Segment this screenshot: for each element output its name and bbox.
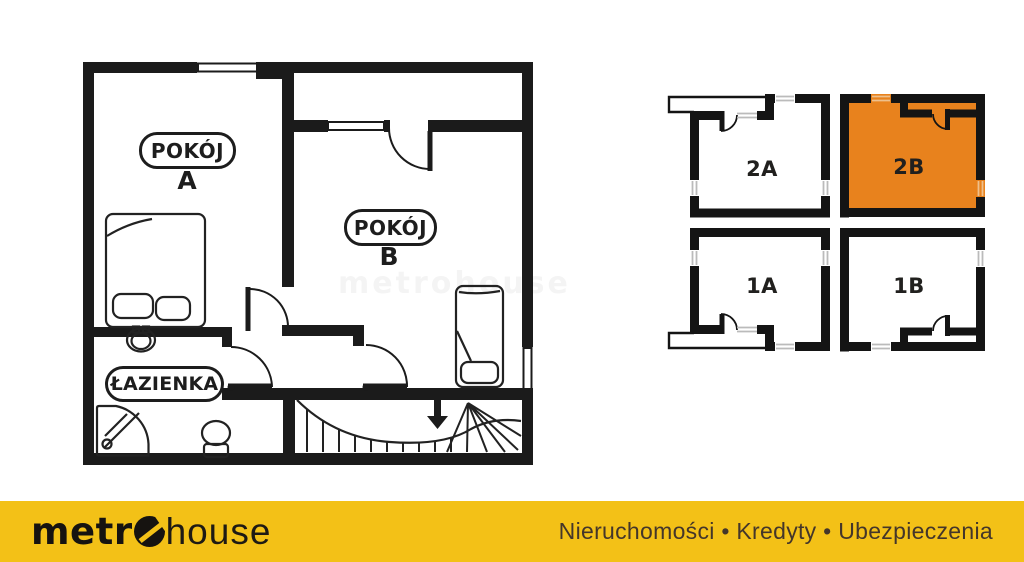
toilet-icon xyxy=(202,421,230,445)
logo-o-house-icon xyxy=(134,516,165,547)
brand-footer-bar: metr house Nieruchomości • Kredyty • Ube… xyxy=(0,501,1024,562)
unit-label-1b: 1B xyxy=(893,274,925,298)
unit-key-diagram xyxy=(669,94,985,352)
floor-plan-drawing xyxy=(0,0,1024,562)
room-b-letter: B xyxy=(374,242,404,271)
logo-o-arrow-tip xyxy=(153,517,167,531)
unit-label-2a: 2A xyxy=(746,157,778,181)
logo-text-metr: metr xyxy=(31,513,133,550)
unit-label-2b: 2B xyxy=(893,155,925,179)
logo-text-house: house xyxy=(166,513,272,550)
pillow-icon xyxy=(156,297,190,320)
down-arrow-icon xyxy=(434,399,441,416)
apartment-plan-walls xyxy=(83,62,533,465)
footer-tagline: Nieruchomości • Kredyty • Ubezpieczenia xyxy=(559,518,993,545)
pillow-icon xyxy=(461,362,498,383)
door-leaf xyxy=(363,384,407,391)
unit-cell-2a xyxy=(669,94,830,218)
bathroom-label-pill: ŁAZIENKA xyxy=(105,366,224,402)
screenshot-root: metrohouse xyxy=(0,0,1024,562)
door-leaf xyxy=(228,384,272,391)
room-b-label-pill: POKÓJ xyxy=(344,209,437,246)
room-a-letter: A xyxy=(172,166,202,195)
room-a-label-pill: POKÓJ xyxy=(139,132,236,169)
unit-label-1a: 1A xyxy=(746,274,778,298)
metrohouse-logo: metr house xyxy=(31,513,271,550)
bed-icon xyxy=(456,286,503,387)
pillow-icon xyxy=(113,294,153,318)
